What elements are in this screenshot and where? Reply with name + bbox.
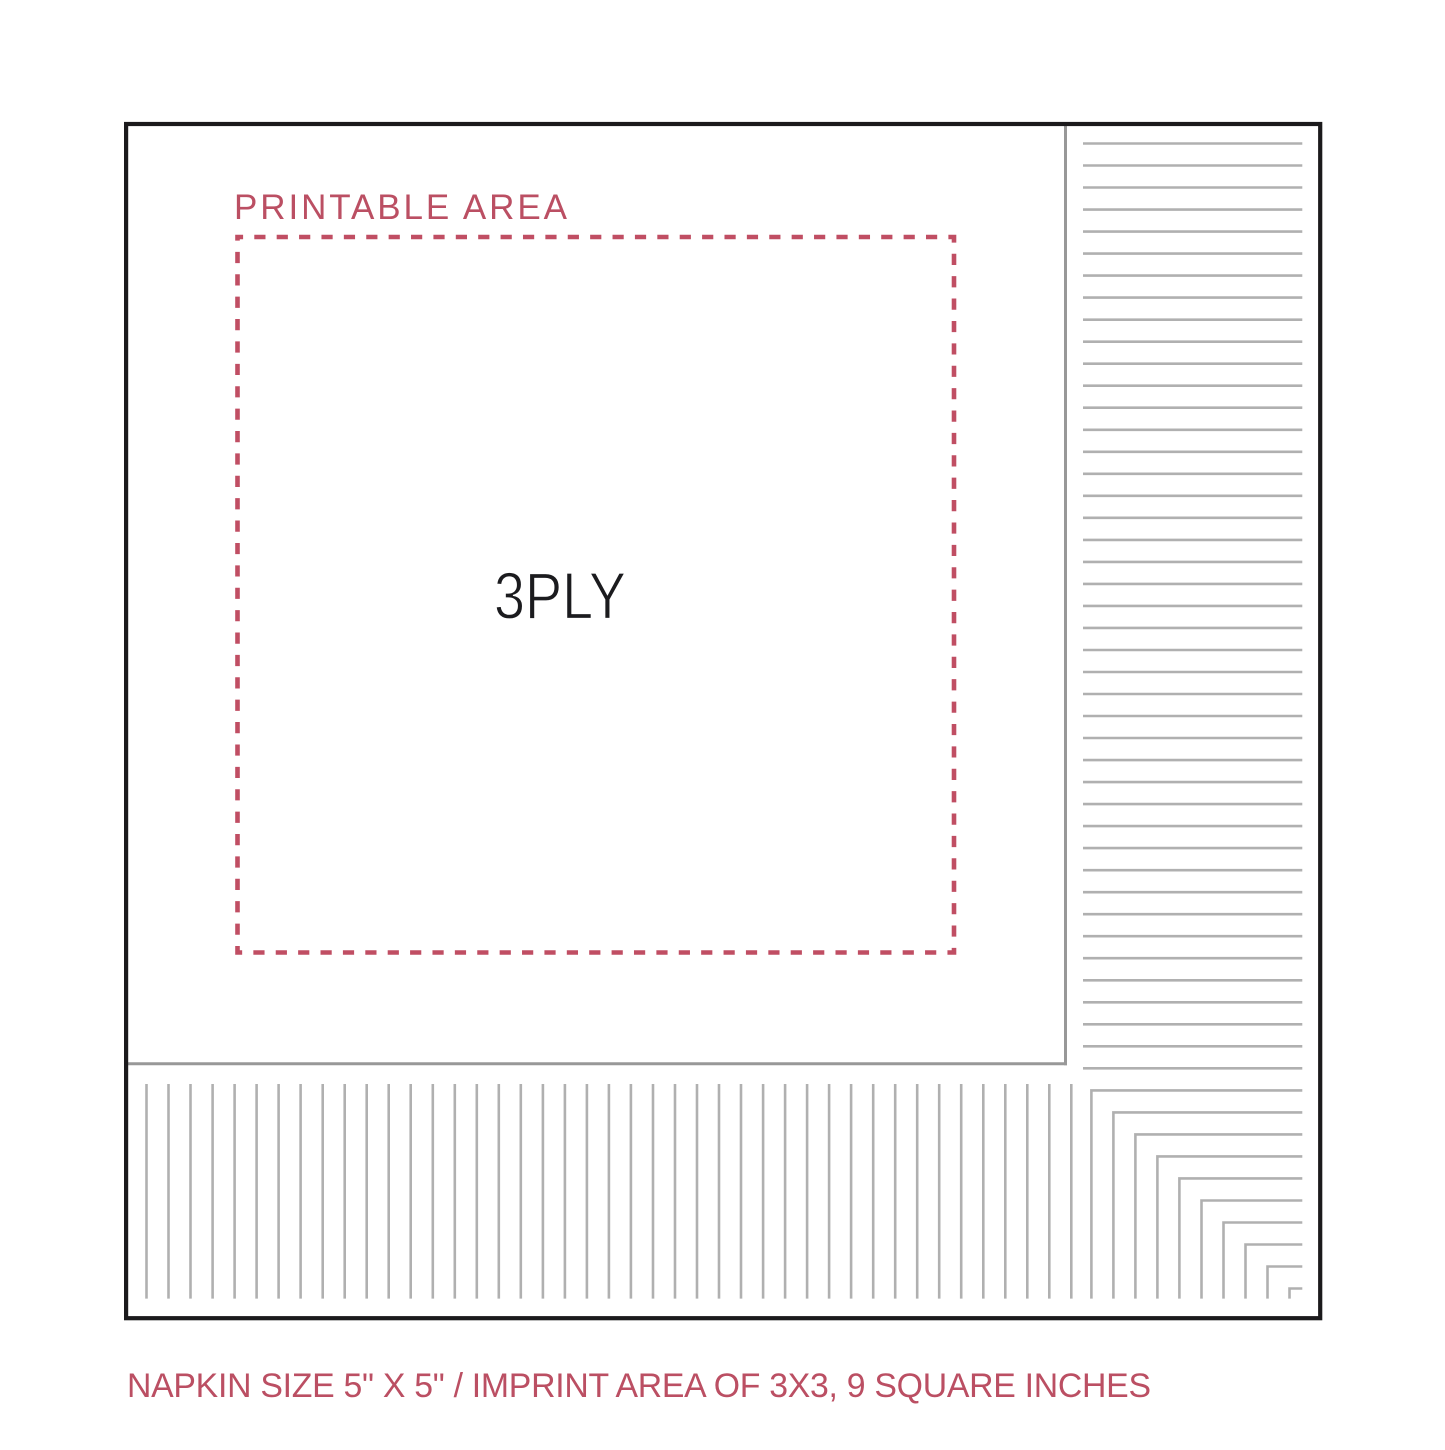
svg-text:3PLY: 3PLY	[494, 558, 626, 632]
svg-text:NAPKIN SIZE 5" X 5" / IMPRINT: NAPKIN SIZE 5" X 5" / IMPRINT AREA OF 3X…	[127, 1367, 1151, 1405]
